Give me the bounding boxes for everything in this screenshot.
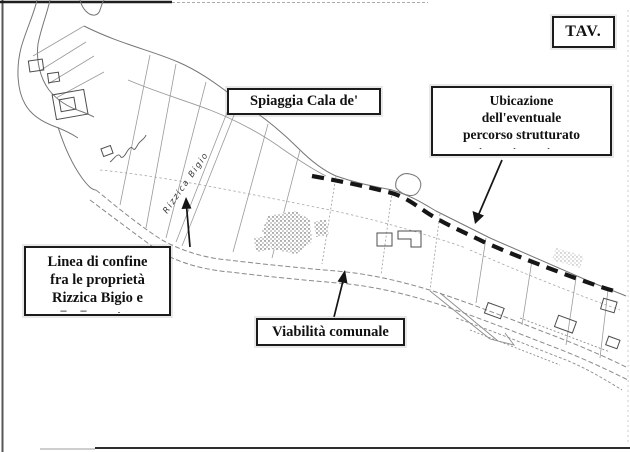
handwritten-scribble: [110, 135, 146, 162]
ubicazione-clipped-line: . . .: [433, 143, 610, 149]
viabilita-arrow: [334, 270, 348, 317]
confine-line-2: fra le proprietà: [26, 271, 169, 289]
tav-label-box: TAV.: [552, 16, 615, 48]
confine-clipped-line: –– .: [26, 307, 169, 313]
ubicazione-line-1: Ubicazione: [433, 92, 610, 109]
scanned-site-plan-page: Rizzica Bigio TAV. Spiaggia Cala de' Ubi…: [0, 0, 630, 452]
confine-line-1: Linea di confine: [26, 253, 169, 271]
spiaggia-label-box: Spiaggia Cala de': [227, 88, 381, 115]
confine-label-box: Linea di confine fra le proprietà Rizzic…: [24, 246, 171, 316]
ubicazione-arrow: [473, 160, 503, 224]
viabilita-label-box: Viabilità comunale: [256, 318, 405, 346]
spiaggia-label: Spiaggia Cala de': [250, 93, 358, 109]
lower-right-parcels: [430, 291, 622, 390]
ubicazione-line-3: percorso strutturato: [433, 126, 610, 143]
vegetation-stipple: [254, 211, 584, 268]
ubicazione-label-box: Ubicazione dell'eventuale percorso strut…: [431, 86, 612, 156]
confine-arrow: [182, 197, 192, 247]
cadastral-map-drawing: Rizzica Bigio: [0, 0, 630, 452]
confine-line-3: Rizzica Bigio e: [26, 289, 169, 307]
viabilita-label: Viabilità comunale: [272, 324, 389, 340]
ubicazione-line-2: dell'eventuale: [433, 109, 610, 126]
tav-label: TAV.: [565, 23, 601, 40]
